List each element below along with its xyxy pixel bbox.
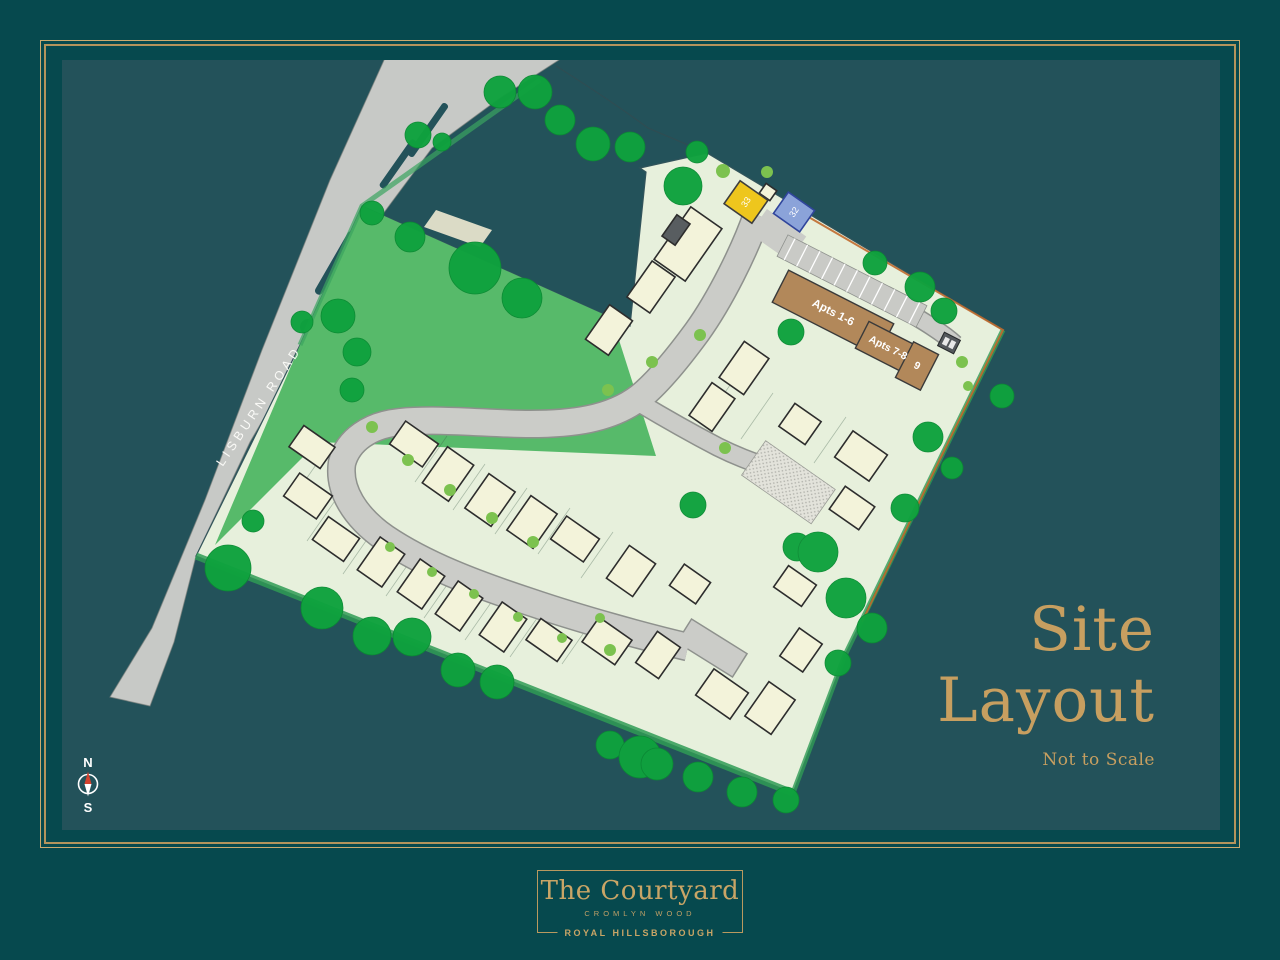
title-block: Site Layout Not to Scale [937,594,1155,770]
compass-north-label: N [83,755,92,770]
development-location: CROMLYN WOOD [538,909,742,918]
compass-needle-south [85,784,92,797]
footer-logo: The Courtyard CROMLYN WOOD ROYAL HILLSBO… [537,870,743,933]
compass-needle-north [85,772,92,785]
compass-south-label: S [84,800,93,815]
compass: N S [79,755,98,815]
page-title-line1: Site [937,594,1155,665]
site-plan-svg: LISBURN ROAD Apts 1-6 Apts 7-8 9 33 32 N… [0,0,1280,960]
development-town: ROYAL HILLSBOROUGH [557,928,722,938]
development-name: The Courtyard [538,876,742,906]
scale-note: Not to Scale [937,750,1155,770]
page-title-line2: Layout [937,665,1155,736]
